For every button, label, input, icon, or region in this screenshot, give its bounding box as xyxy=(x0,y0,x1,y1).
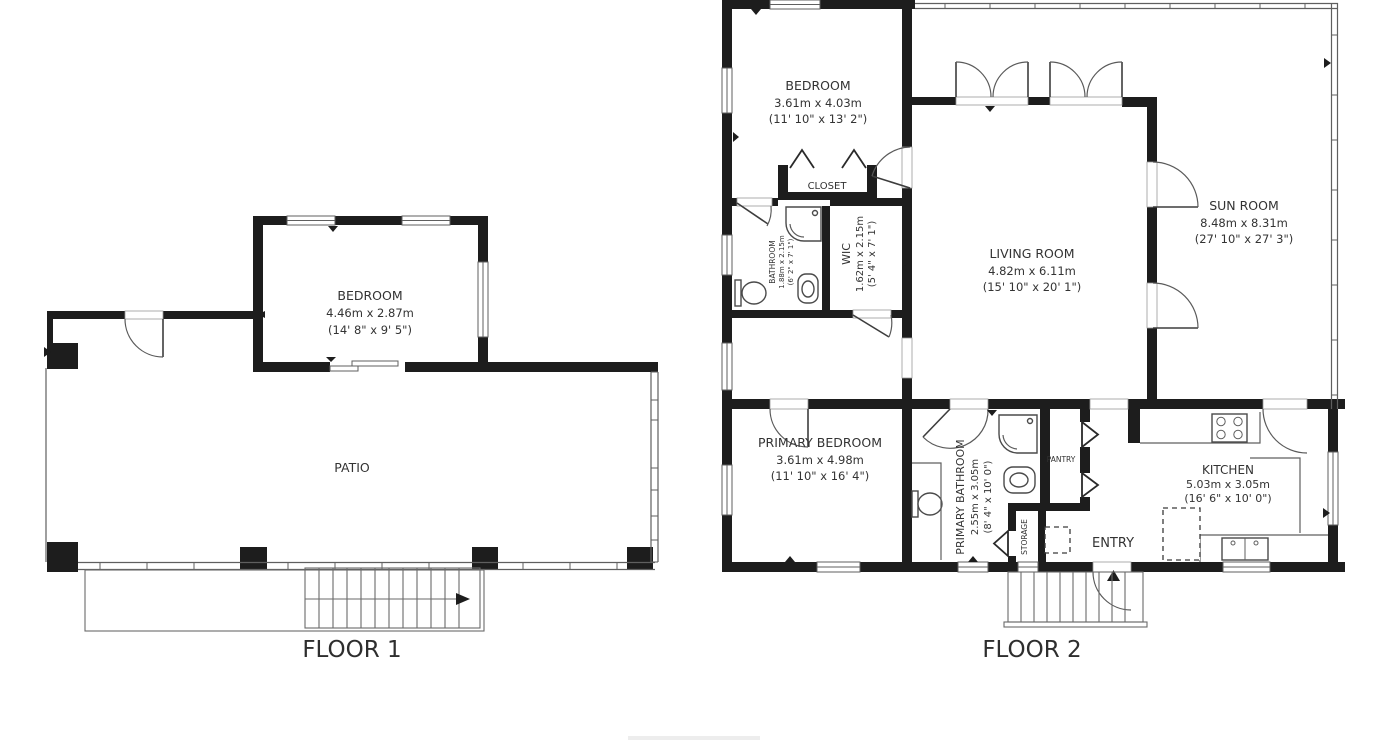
kitchen-label: KITCHEN xyxy=(1202,463,1254,477)
french-doors-2 xyxy=(1050,62,1122,105)
bottom-edge-artifact xyxy=(628,736,760,740)
kitchen-imperial: (16' 6" x 10' 0") xyxy=(1184,492,1271,505)
floor2-labels: BEDROOM 3.61m x 4.03m (11' 10" x 13' 2")… xyxy=(758,78,1293,663)
sun-room-imperial: (27' 10" x 27' 3") xyxy=(1195,232,1294,246)
primary-bathroom-imperial: (8' 4" x 10' 0") xyxy=(983,460,994,533)
shower xyxy=(786,207,821,241)
kitchen-sink xyxy=(1222,538,1268,560)
hallway-opening xyxy=(902,338,912,378)
primary-bedroom-metric: 3.61m x 4.98m xyxy=(776,453,864,467)
floor2-bedroom-metric: 3.61m x 4.03m xyxy=(774,96,862,110)
patio-window-wall xyxy=(651,372,658,562)
floor2-plan: BEDROOM 3.61m x 4.03m (11' 10" x 13' 2")… xyxy=(722,0,1345,663)
closet-bifold-doors xyxy=(790,150,866,168)
floor1-bedroom-imperial: (14' 8" x 9' 5") xyxy=(328,323,412,337)
patio-label: PATIO xyxy=(334,460,370,475)
pantry-label: PANTRY xyxy=(1047,455,1076,464)
sink xyxy=(798,274,818,303)
closet-label: CLOSET xyxy=(808,181,848,192)
floor2-bedroom-label: BEDROOM xyxy=(785,78,850,93)
bathroom-door xyxy=(737,198,772,226)
primary-shower xyxy=(999,415,1037,453)
living-room-metric: 4.82m x 6.11m xyxy=(988,264,1076,278)
patio-door xyxy=(125,311,163,357)
primary-bathroom-label: PRIMARY BATHROOM xyxy=(954,439,967,554)
floorplan-page: BEDROOM 4.46m x 2.87m (14' 8" x 9' 5") P… xyxy=(0,0,1383,740)
toilet xyxy=(735,280,766,306)
entry-passage-opening xyxy=(1090,399,1128,409)
floor1-bedroom-metric: 4.46m x 2.87m xyxy=(326,306,414,320)
dishwasher-dashed xyxy=(1045,527,1070,553)
wic-imperial: (5' 4" x 7' 1") xyxy=(867,221,878,288)
kitchen-metric: 5.03m x 3.05m xyxy=(1186,478,1270,491)
sun-room-label: SUN ROOM xyxy=(1209,198,1279,213)
wic-metric: 1.62m x 2.15m xyxy=(855,216,866,292)
floor2-bedroom-imperial: (11' 10" x 13' 2") xyxy=(769,112,868,126)
floor1-stairs xyxy=(85,568,484,631)
primary-toilet xyxy=(912,491,942,517)
floorplan-drawing: BEDROOM 4.46m x 2.87m (14' 8" x 9' 5") P… xyxy=(0,0,1383,740)
patio-railing xyxy=(78,562,655,570)
floor2-stairs xyxy=(1004,572,1147,627)
primary-bedroom-label: PRIMARY BEDROOM xyxy=(758,435,882,450)
primary-sink xyxy=(1004,467,1035,493)
bathroom-imperial: (6' 2" x 7' 1") xyxy=(787,238,795,285)
refrigerator-dashed xyxy=(1163,508,1200,560)
living-room-label: LIVING ROOM xyxy=(989,246,1074,261)
living-room-imperial: (15' 10" x 20' 1") xyxy=(983,280,1082,294)
storage-label: STORAGE xyxy=(1020,519,1029,555)
entry-label: ENTRY xyxy=(1092,536,1134,551)
bathroom-metric: 1.88m x 2.15m xyxy=(778,235,786,289)
kitchen-door xyxy=(1263,399,1307,453)
bathroom-label: BATHROOM xyxy=(768,240,777,283)
bedroom-door xyxy=(872,147,912,188)
floor1-bedroom-label: BEDROOM xyxy=(337,288,402,303)
floor1-markers xyxy=(44,226,338,362)
floor1-walls xyxy=(47,216,658,572)
wic-door xyxy=(853,310,892,337)
wic-label: WIC xyxy=(840,243,853,265)
stove xyxy=(1212,414,1247,442)
sliding-door xyxy=(330,361,398,371)
sunroom-door-upper xyxy=(1147,162,1198,207)
sunroom-door-lower xyxy=(1147,283,1198,328)
floor1-title: FLOOR 1 xyxy=(302,637,401,663)
floor2-title: FLOOR 2 xyxy=(982,637,1081,663)
french-doors-1 xyxy=(956,62,1028,105)
primary-bathroom-metric: 2.55m x 3.05m xyxy=(970,459,981,535)
floor1-plan: BEDROOM 4.46m x 2.87m (14' 8" x 9' 5") P… xyxy=(44,216,658,663)
stairs-direction-arrow xyxy=(456,593,470,605)
primary-bedroom-imperial: (11' 10" x 16' 4") xyxy=(771,469,870,483)
storage-bifold-door xyxy=(994,531,1008,556)
sun-room-metric: 8.48m x 8.31m xyxy=(1200,216,1288,230)
